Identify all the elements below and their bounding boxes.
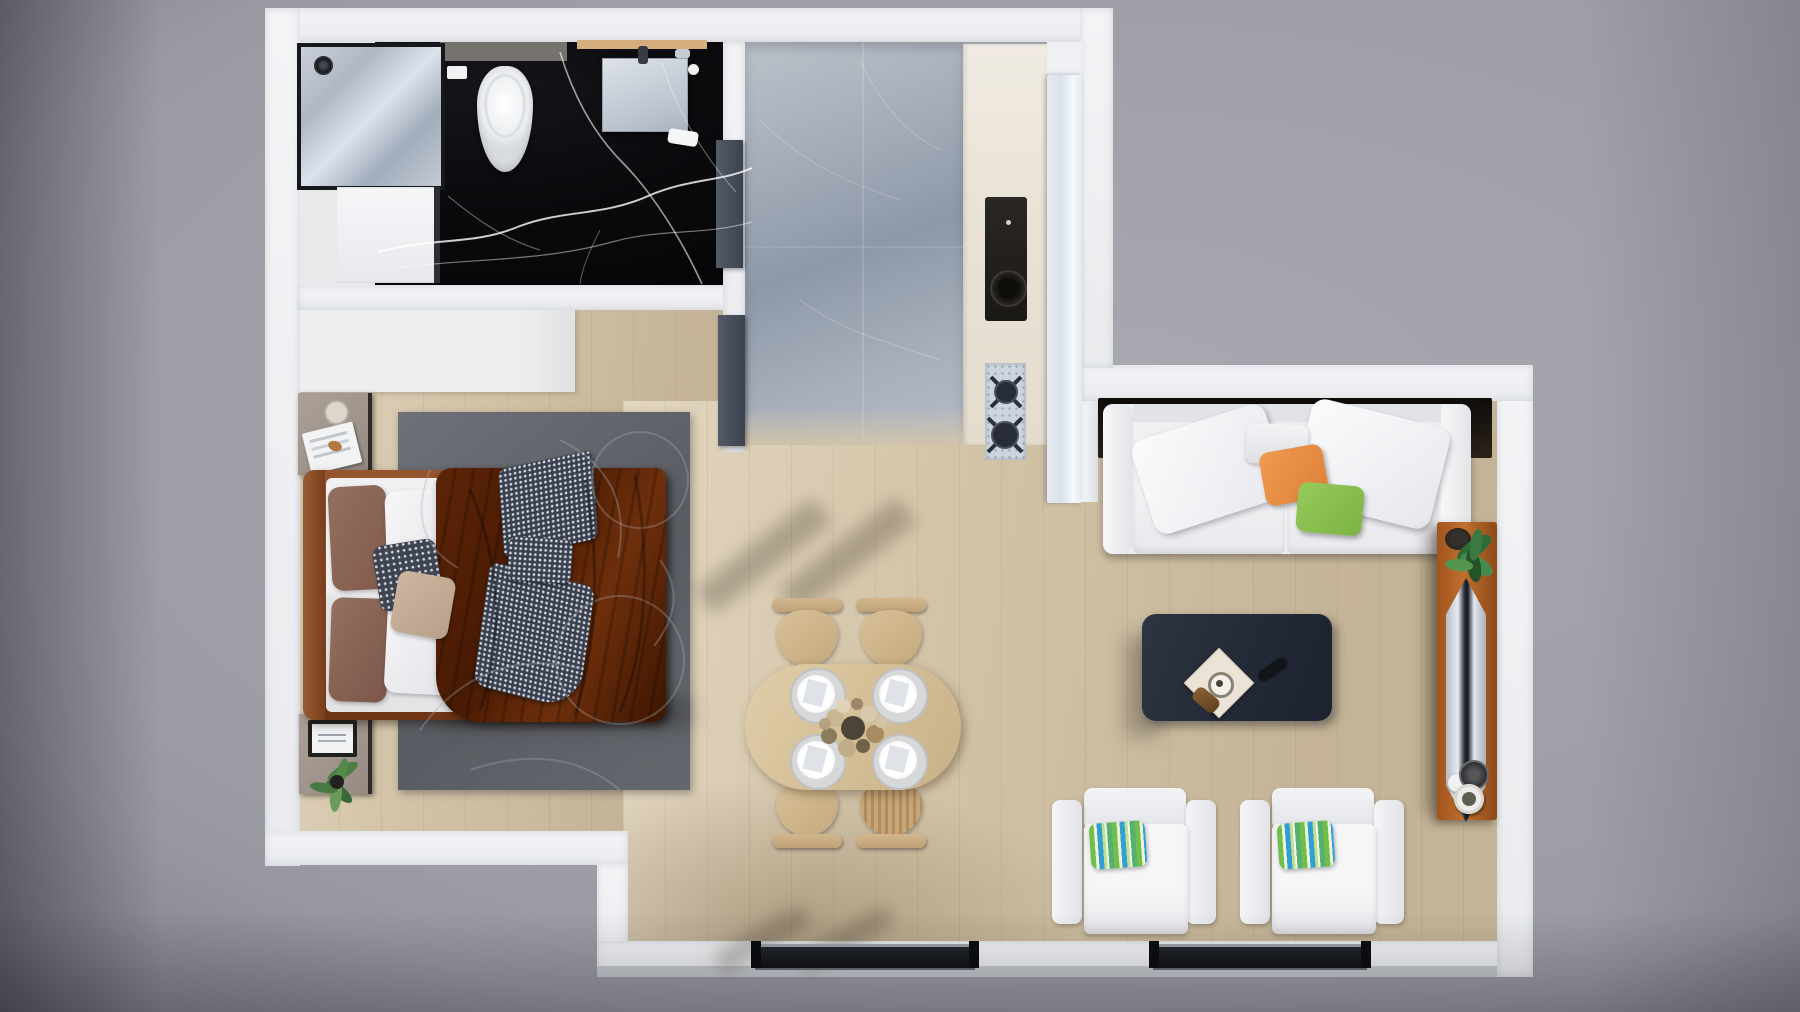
wall-west [265, 8, 300, 866]
sofa-armrest [1103, 404, 1133, 554]
window-cap [751, 941, 761, 968]
plate [879, 675, 917, 713]
armchair-armrest [1240, 800, 1270, 924]
bathroom-door [716, 140, 743, 268]
place-setting [790, 668, 846, 724]
pillow-brown [328, 597, 390, 703]
island-counter [1047, 75, 1082, 503]
tablet [308, 720, 357, 757]
wall-bathroom-south [297, 285, 745, 310]
bedside-cup [324, 400, 349, 425]
floorplan-render [0, 0, 1800, 1012]
coffee-cup [1208, 672, 1234, 698]
dining-chair [772, 834, 842, 848]
wall-living-north [1080, 365, 1533, 401]
floor-transition [745, 408, 963, 445]
apartment-floorplan [0, 0, 1800, 1012]
sink-basin [990, 270, 1027, 307]
hallway-floor-marble [745, 42, 963, 445]
soap-dispenser [688, 64, 699, 75]
flush-plate [447, 66, 467, 79]
dining-chair [856, 834, 926, 848]
wall-bedroom-south [265, 831, 628, 865]
window-south-1 [755, 944, 975, 970]
armchair-armrest [1052, 800, 1082, 924]
wall-kitchen-east [1080, 8, 1113, 368]
soap-tray [675, 49, 690, 58]
washing-machine [337, 187, 439, 283]
wall-north [265, 8, 1113, 42]
plate [797, 741, 835, 779]
window-cap [1149, 941, 1159, 968]
place-setting [872, 734, 928, 790]
wall-east [1497, 365, 1533, 977]
faucet [638, 46, 648, 64]
tile-seam [862, 42, 864, 442]
window-cap [1361, 941, 1371, 968]
dining-table [745, 664, 961, 790]
green-pillow [1295, 481, 1365, 537]
place-setting [872, 668, 928, 724]
gas-stove [985, 363, 1026, 460]
plant-pot [1445, 528, 1471, 550]
armchair-armrest [1186, 800, 1216, 924]
wardrobe-top [297, 308, 575, 392]
bedroom-door [718, 315, 745, 446]
washing-machine-seam [434, 187, 440, 283]
pillow-tan [389, 569, 457, 640]
wall-kitchen-side-panel [1082, 401, 1098, 502]
decorative-dish [1454, 784, 1484, 814]
vanity-sink [602, 58, 688, 132]
tile-seam [745, 246, 963, 248]
armchair-armrest [1374, 800, 1404, 924]
houndstooth-throw [507, 536, 574, 584]
plate [879, 741, 917, 779]
wall-south-outer-edge [597, 966, 1533, 977]
window-cap [969, 941, 979, 968]
faucet-detail [1006, 220, 1011, 225]
plate [797, 675, 835, 713]
window-south-2 [1153, 944, 1367, 970]
place-setting [790, 734, 846, 790]
shower-drain [314, 56, 333, 75]
striped-pillow [1088, 820, 1147, 870]
headboard [303, 470, 325, 720]
striped-pillow [1276, 820, 1335, 870]
wall-island-cap [1047, 42, 1082, 75]
toilet-ledge [440, 42, 567, 61]
